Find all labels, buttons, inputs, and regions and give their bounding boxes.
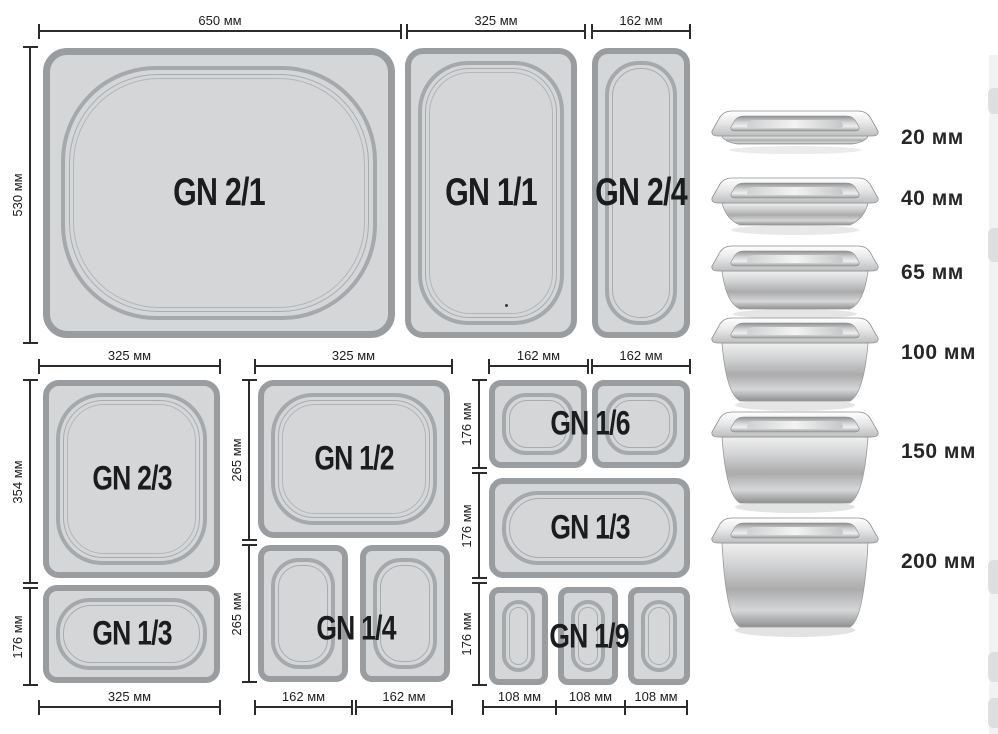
pan-label: GN 2/1 [173, 171, 265, 215]
dim-label: 176 мм [459, 504, 474, 547]
edge-artifact-strip [989, 55, 998, 734]
pan-floor [747, 187, 843, 195]
depth-label-100mm: 100 мм [901, 341, 976, 365]
dim-label: 265 мм [229, 592, 244, 635]
dim-label: 530 мм [10, 173, 25, 216]
dim-265mm-lower: 265 мм [248, 545, 250, 682]
pan-label: GN 1/2 [314, 440, 393, 479]
edge-artifact [988, 698, 998, 728]
pan-floor [747, 421, 843, 429]
dim-162mm-mid-b: 162 мм [356, 706, 452, 708]
dim-530mm: 530 мм [29, 47, 31, 343]
dim-325mm-top: 325 мм [407, 30, 585, 32]
pan-gn-2-4: GN 2/4 [592, 48, 690, 338]
dim-label: 108 мм [495, 689, 544, 704]
pan-gn-2-1: GN 2/1 [43, 48, 395, 338]
pan-photo-20mm [710, 105, 880, 155]
dim-label: 162 мм [616, 348, 665, 363]
dim-label: 176 мм [10, 615, 25, 658]
pan-label: GN 1/3 [550, 509, 629, 548]
dim-108mm-b: 108 мм [556, 706, 625, 708]
pan-photo-100mm [710, 312, 880, 412]
dim-650mm: 650 мм [39, 30, 401, 32]
pan-label: GN 1/3 [92, 615, 171, 654]
pan-floor [747, 527, 843, 535]
pan-floor [747, 120, 843, 128]
pan-floor [747, 327, 843, 335]
pan-label: GN 1/1 [445, 171, 537, 215]
pan-label: GN 2/4 [595, 171, 687, 215]
edge-artifact [988, 88, 998, 114]
pan-gn-1-9-a [489, 587, 548, 685]
dim-108mm-a: 108 мм [483, 706, 556, 708]
dim-176mm-a: 176 мм [478, 380, 480, 468]
edge-artifact [988, 560, 998, 594]
dim-label: 162 мм [279, 689, 328, 704]
dim-108mm-c: 108 мм [625, 706, 687, 708]
pan-body [722, 343, 868, 401]
dim-label: 162 мм [514, 348, 563, 363]
gastronorm-size-diagram: 650 мм 325 мм 162 мм 530 мм GN 2/1 GN 1/… [0, 0, 998, 734]
dim-354mm: 354 мм [29, 380, 31, 583]
dim-265mm-upper: 265 мм [248, 380, 250, 540]
dim-176mm-b: 176 мм [478, 473, 480, 578]
pan-body [722, 203, 868, 225]
pan-label-gn-1-6: GN 1/6 [550, 405, 629, 444]
dim-176mm-c: 176 мм [478, 583, 480, 685]
depth-label-65mm: 65 мм [901, 261, 964, 285]
dim-label: 650 мм [195, 13, 244, 28]
edge-artifact [988, 228, 998, 262]
pan-shadow [731, 225, 859, 235]
pan-body [722, 136, 868, 144]
pan-photo-200mm [710, 512, 880, 638]
pan-body [722, 271, 868, 309]
dim-label: 162 мм [616, 13, 665, 28]
dim-162mm-right-b: 162 мм [592, 365, 690, 367]
dim-162mm-top: 162 мм [592, 30, 690, 32]
edge-artifact [988, 652, 998, 682]
pan-body [722, 543, 868, 627]
dim-325mm-left-bottom: 325 мм [39, 706, 220, 708]
dim-325mm-mid-top: 325 мм [255, 365, 452, 367]
pan-photo-65mm [710, 240, 880, 320]
pan-shadow [729, 146, 861, 154]
dim-label: 162 мм [379, 689, 428, 704]
dim-162mm-mid-a: 162 мм [255, 706, 352, 708]
depth-label-200mm: 200 мм [901, 550, 976, 574]
pan-label-gn-1-4: GN 1/4 [316, 610, 395, 649]
pan-photo-150mm [710, 406, 880, 514]
pan-gn-1-9-c [628, 587, 690, 685]
dim-label: 325 мм [329, 348, 378, 363]
depth-label-20mm: 20 мм [901, 126, 964, 150]
dim-label: 108 мм [566, 689, 615, 704]
dim-label: 176 мм [459, 402, 474, 445]
pan-gn-1-2: GN 1/2 [258, 380, 450, 538]
pan-body [722, 437, 868, 503]
pan-gn-1-3-right: GN 1/3 [489, 478, 690, 578]
dim-label: 354 мм [10, 460, 25, 503]
pan-gn-1-1: GN 1/1 [405, 48, 577, 338]
dim-176mm-left: 176 мм [29, 588, 31, 685]
dim-label: 265 мм [229, 438, 244, 481]
pan-gn-1-3-left: GN 1/3 [43, 585, 220, 683]
pan-inner-line [648, 607, 670, 665]
pan-gn-2-3: GN 2/3 [43, 380, 220, 578]
dim-label: 176 мм [459, 612, 474, 655]
artifact-dot [505, 304, 508, 307]
depth-label-40mm: 40 мм [901, 187, 964, 211]
dim-162mm-right-a: 162 мм [489, 365, 588, 367]
pan-label: GN 2/3 [92, 460, 171, 499]
dim-label: 108 мм [631, 689, 680, 704]
depth-label-150mm: 150 мм [901, 440, 976, 464]
pan-inner-line [509, 607, 528, 665]
dim-label: 325 мм [105, 348, 154, 363]
dim-325mm-left-top: 325 мм [39, 365, 220, 367]
pan-photo-40mm [710, 172, 880, 236]
pan-label-gn-1-9: GN 1/9 [549, 618, 628, 657]
dim-label: 325 мм [105, 689, 154, 704]
dim-label: 325 мм [471, 13, 520, 28]
pan-floor [747, 255, 843, 263]
